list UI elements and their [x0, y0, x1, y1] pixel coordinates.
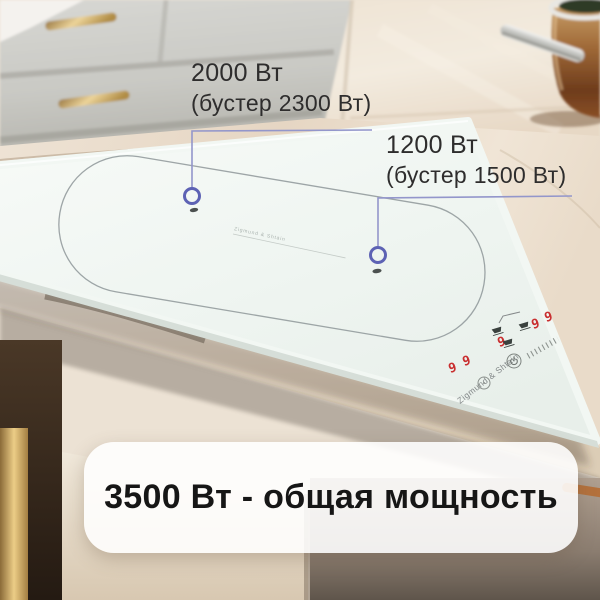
- product-marketing-image: Zigmund & Shtain Zigmund & Shtain 9 9 9 …: [0, 0, 600, 600]
- power-value-right: 1200 Вт: [386, 130, 566, 161]
- total-power-banner: 3500 Вт - общая мощность: [84, 442, 578, 553]
- cabinet-gold-trim: [0, 428, 28, 600]
- power-label-right: 1200 Вт (бустер 1500 Вт): [386, 130, 566, 189]
- booster-value-left: (бустер 2300 Вт): [191, 89, 371, 117]
- booster-value-right: (бустер 1500 Вт): [386, 161, 566, 189]
- timer-icon-dot: [483, 382, 485, 384]
- power-value-left: 2000 Вт: [191, 58, 371, 89]
- power-label-left: 2000 Вт (бустер 2300 Вт): [191, 58, 371, 117]
- total-power-text: 3500 Вт - общая мощность: [104, 478, 558, 517]
